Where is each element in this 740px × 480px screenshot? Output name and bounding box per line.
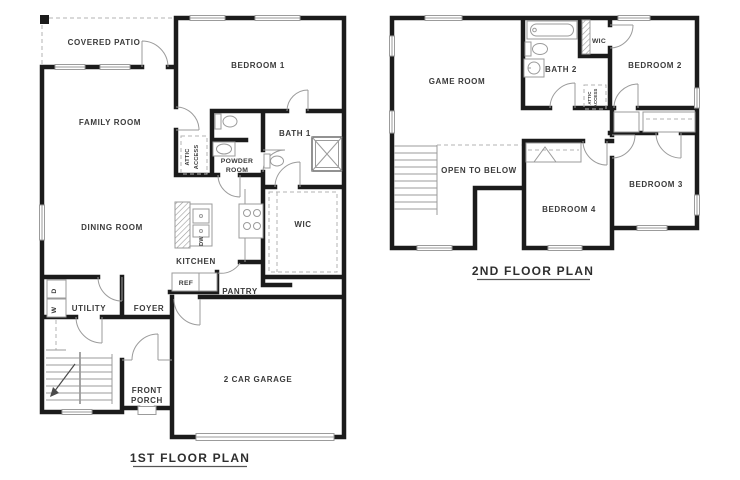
game-room-label: GAME ROOM — [429, 77, 486, 86]
bath1-label: BATH 1 — [279, 129, 311, 138]
attic-access-label-1f-line1: ATTIC — [185, 148, 191, 165]
open-to-below-label: OPEN TO BELOW — [441, 166, 517, 175]
stair-direction-arrow — [50, 387, 59, 397]
dining-room-label: DINING ROOM — [81, 223, 143, 232]
foyer-label: FOYER — [134, 304, 165, 313]
bedroom3-label: BEDROOM 3 — [629, 180, 683, 189]
front-porch-label-line1: FRONT — [132, 386, 163, 395]
porch-step — [138, 407, 156, 415]
bedroom3-closet — [643, 112, 695, 132]
powder-sink-icon — [213, 142, 235, 156]
second-floor-title: 2ND FLOOR PLAN — [472, 264, 594, 278]
family-room-label: FAMILY ROOM — [79, 118, 141, 127]
first-floor-title: 1ST FLOOR PLAN — [130, 451, 250, 465]
washer-label: W — [51, 306, 58, 313]
powder-room-label-line2: ROOM — [226, 167, 248, 174]
patio-post — [40, 15, 49, 24]
first-floor-plan: COVERED PATIO BEDROOM 1 FAMILY ROOM BATH… — [40, 15, 345, 467]
attic-access-label-1f-line2: ACCESS — [194, 145, 200, 170]
refrigerator-label: REF — [179, 280, 194, 287]
bedroom4-closet — [526, 143, 581, 162]
wic-label-2f: WIC — [592, 38, 606, 45]
bedroom4-label: BEDROOM 4 — [542, 205, 596, 214]
wic2-shelf — [582, 20, 590, 54]
bath2-label: BATH 2 — [545, 65, 577, 74]
floor-plan-drawing: COVERED PATIO BEDROOM 1 FAMILY ROOM BATH… — [0, 0, 740, 480]
garage-label: 2 CAR GARAGE — [224, 375, 293, 384]
kitchen-sink-icon — [193, 209, 209, 223]
pantry-label: PANTRY — [222, 287, 258, 296]
bath1-toilet-icon — [264, 154, 284, 168]
floor-plan-page: COVERED PATIO BEDROOM 1 FAMILY ROOM BATH… — [0, 0, 740, 480]
wic-label-1f: WIC — [294, 220, 311, 229]
covered-patio-label: COVERED PATIO — [68, 38, 141, 47]
powder-toilet-icon — [215, 114, 237, 129]
utility-label: UTILITY — [72, 304, 106, 313]
second-floor-plan: GAME ROOM BATH 2 WIC BEDROOM 2 ATTIC ACC… — [390, 16, 700, 280]
stove-icon — [239, 189, 263, 262]
attic-access-label-2f-line1: ATTIC — [587, 91, 592, 105]
bath2-sink-icon — [524, 59, 544, 77]
wic-shelving — [269, 192, 337, 272]
front-porch-label-line2: PORCH — [131, 396, 163, 405]
tub-icon — [527, 21, 577, 39]
bedroom2-label: BEDROOM 2 — [628, 61, 682, 70]
shower-icon — [312, 137, 342, 171]
powder-room-label-line1: POWDER — [221, 158, 253, 165]
dishwasher-label: DW — [199, 236, 205, 246]
kitchen-label: KITCHEN — [176, 257, 216, 266]
bedroom2-closet — [614, 112, 639, 132]
kitchen-island — [175, 202, 212, 248]
stairs-second-floor — [394, 145, 522, 215]
attic-access-label-2f-line2: ACCESS — [593, 89, 598, 108]
bath2-toilet-icon — [525, 42, 548, 56]
dryer-label: D — [51, 288, 58, 293]
bedroom1-label: BEDROOM 1 — [231, 61, 285, 70]
